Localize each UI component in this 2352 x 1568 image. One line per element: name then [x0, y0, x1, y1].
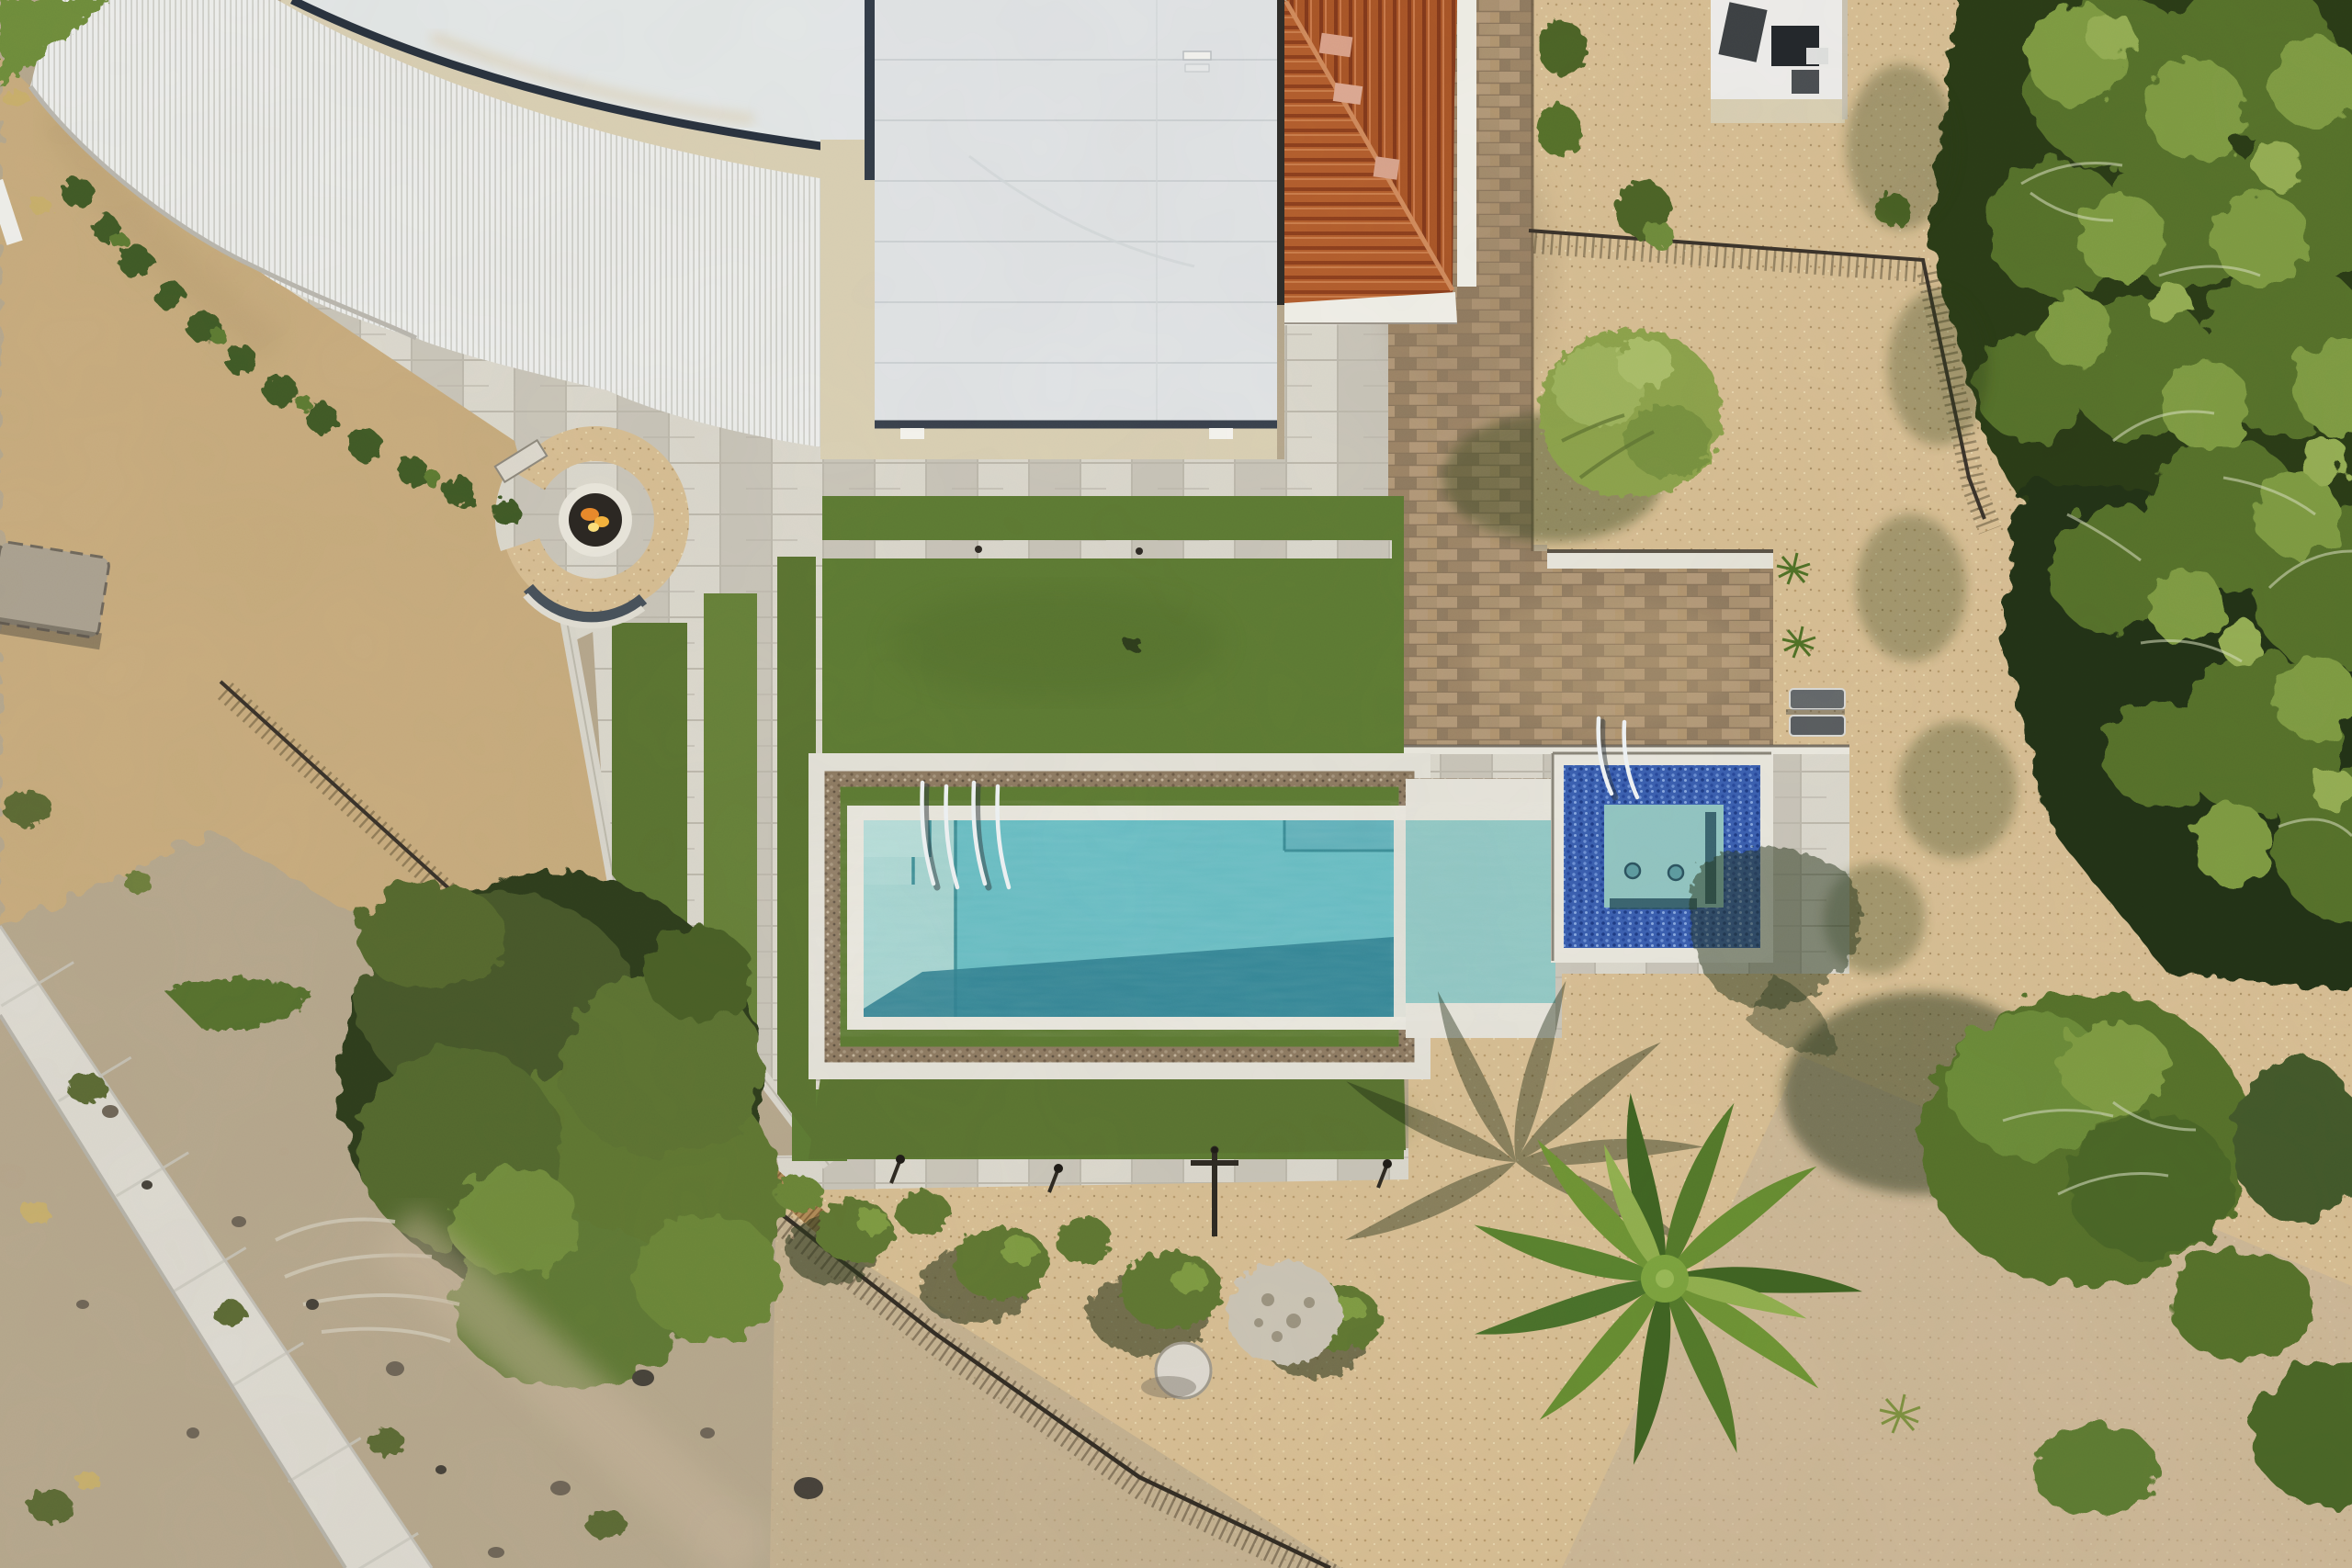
aerial-photo: Top-down aerial photograph of a modern d…: [0, 0, 2352, 1568]
grain-overlay: [0, 0, 2352, 1568]
